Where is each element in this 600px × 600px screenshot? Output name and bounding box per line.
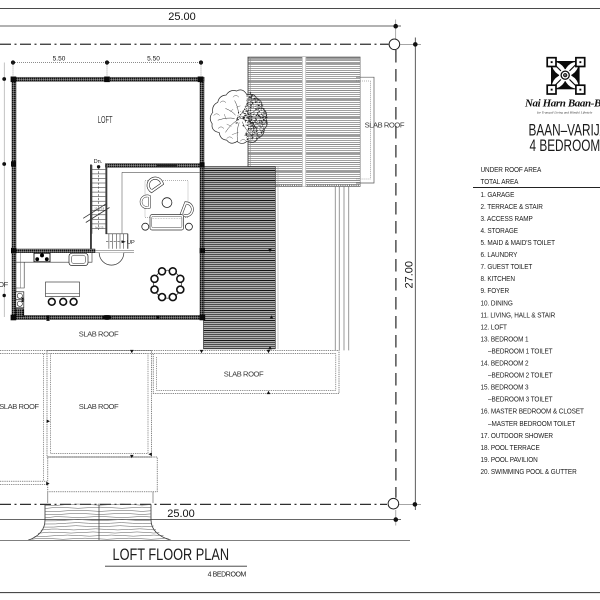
svg-text:–BEDROOM 1 TOILET: –BEDROOM 1 TOILET <box>488 348 553 355</box>
svg-text:25.00: 25.00 <box>168 11 196 23</box>
svg-text:SLAB ROOF: SLAB ROOF <box>365 120 405 129</box>
svg-text:3. ACCESS RAMP: 3. ACCESS RAMP <box>481 216 534 223</box>
svg-text:10. DINING: 10. DINING <box>481 300 513 307</box>
svg-text:8. KITCHEN: 8. KITCHEN <box>481 276 516 283</box>
svg-text:12. LOFT: 12. LOFT <box>481 324 508 331</box>
svg-text:–BEDROOM 3 TOILET: –BEDROOM 3 TOILET <box>488 396 553 403</box>
svg-text:SLAB ROOF: SLAB ROOF <box>0 402 39 411</box>
svg-text:7. GUEST TOILET: 7. GUEST TOILET <box>481 264 534 271</box>
svg-text:27.00: 27.00 <box>404 261 416 289</box>
svg-text:15x0.18: 15x0.18 <box>94 206 104 210</box>
svg-text:14. BEDROOM 2: 14. BEDROOM 2 <box>481 360 529 367</box>
svg-text:–BEDROOM 2 TOILET: –BEDROOM 2 TOILET <box>488 372 553 379</box>
svg-text:5. MAID & MAID'S TOILET: 5. MAID & MAID'S TOILET <box>481 240 556 247</box>
svg-text:11. LIVING, HALL & STAIR: 11. LIVING, HALL & STAIR <box>481 312 556 319</box>
svg-text:SLAB ROOF: SLAB ROOF <box>79 402 119 411</box>
svg-text:9. FOYER: 9. FOYER <box>481 288 510 295</box>
svg-text:6. LAUNDRY: 6. LAUNDRY <box>481 252 518 259</box>
svg-text:1. GARAGE: 1. GARAGE <box>481 191 515 198</box>
svg-text:19. POOL PAVILION: 19. POOL PAVILION <box>481 457 538 464</box>
svg-text:20. SWIMMING POOL & GUTTER: 20. SWIMMING POOL & GUTTER <box>481 469 577 476</box>
svg-text:LOFT FLOOR PLAN: LOFT FLOOR PLAN <box>113 545 230 564</box>
svg-text:5.50: 5.50 <box>53 55 66 62</box>
svg-text:UP: UP <box>127 240 135 246</box>
svg-text:5.50: 5.50 <box>147 55 160 62</box>
svg-text:18. POOL TERRACE: 18. POOL TERRACE <box>481 445 541 452</box>
svg-text:UNDER ROOF AREA: UNDER ROOF AREA <box>481 167 542 174</box>
svg-text:16. MASTER BEDROOM & CLOSET: 16. MASTER BEDROOM & CLOSET <box>481 408 585 415</box>
svg-text:4. STORAGE: 4. STORAGE <box>481 228 519 235</box>
svg-text:Nai Harn Baan-Bua: Nai Harn Baan-Bua <box>524 98 600 110</box>
svg-text:Dn.: Dn. <box>94 159 103 165</box>
svg-text:TOTAL AREA: TOTAL AREA <box>481 179 519 186</box>
svg-text:4 BEDROOMS: 4 BEDROOMS <box>530 137 600 155</box>
svg-text:25.00: 25.00 <box>167 508 195 520</box>
svg-text:SLAB ROOF: SLAB ROOF <box>0 280 9 289</box>
svg-text:4 BEDROOM: 4 BEDROOM <box>208 572 247 579</box>
svg-text:LOFT: LOFT <box>98 113 113 125</box>
svg-text:SLAB ROOF: SLAB ROOF <box>224 369 264 378</box>
svg-text:2. TERRACE & STAIR: 2. TERRACE & STAIR <box>481 204 543 211</box>
svg-text:SLAB ROOF: SLAB ROOF <box>79 330 119 339</box>
svg-text:9x0.25: 9x0.25 <box>95 226 104 230</box>
svg-text:13. BEDROOM 1: 13. BEDROOM 1 <box>481 336 529 343</box>
svg-text:17. OUTDOOR SHOWER: 17. OUTDOOR SHOWER <box>481 432 554 439</box>
svg-text:–MASTER BEDROOM TOILET: –MASTER BEDROOM TOILET <box>488 420 576 427</box>
svg-text:for Tranquil Living and Blissf: for Tranquil Living and Blissful Lifesty… <box>537 110 593 114</box>
svg-text:15. BEDROOM 3: 15. BEDROOM 3 <box>481 384 529 391</box>
